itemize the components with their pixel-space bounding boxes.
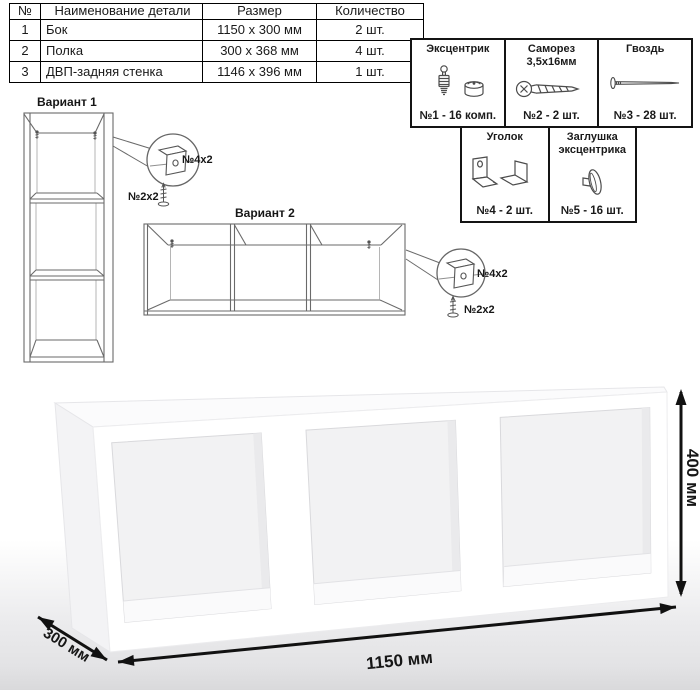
shelf-3d-render: [55, 387, 668, 652]
cell-num: 1: [10, 20, 41, 41]
hardware-item-nail: Гвоздь №3 - 28 шт.: [597, 40, 691, 126]
hardware-item-eccentric: Эксцентрик №1 - 16 комп.: [412, 40, 504, 126]
bracket-qty-label: №4х2: [182, 154, 213, 166]
bracket-qty-label: №4х2: [477, 268, 508, 280]
cam-fitting-icon: [418, 63, 498, 103]
height-dimension-label: 400 мм: [683, 449, 700, 507]
variant2-title: Вариант 2: [235, 206, 295, 220]
corner-bracket-icon: [463, 151, 547, 197]
cell-size: 1150 х 300 мм: [203, 20, 317, 41]
parts-table: № Наименование детали Размер Количество …: [9, 3, 424, 83]
hardware-item-bracket: Уголок №4 - 2 шт.: [462, 128, 548, 221]
hardware-name: Эксцентрик: [426, 43, 489, 56]
cell-num: 2: [10, 41, 41, 62]
nail-icon: [603, 73, 687, 93]
hardware-name: Заглушка: [558, 131, 626, 144]
variant1-callout: №4х2 №2х2: [113, 134, 213, 206]
assembly-instruction-page: Вариант 1: [0, 0, 700, 690]
cell-qty: 1 шт.: [317, 62, 424, 83]
screw-icon: [512, 74, 592, 104]
table-row: 2 Полка 300 х 368 мм 4 шт.: [10, 41, 424, 62]
screw-icon: [448, 297, 458, 318]
back-panel-screws: [171, 240, 371, 249]
hardware-box-row1: Эксцентрик №1 - 16 комп. Са: [410, 38, 693, 128]
hardware-name: Саморез: [527, 43, 577, 56]
screw-icon: [158, 184, 168, 207]
parts-table-header-row: № Наименование детали Размер Количество: [10, 4, 424, 20]
hardware-count: №4 - 2 шт.: [477, 205, 533, 217]
variant1-title: Вариант 1: [37, 95, 97, 109]
hardware-name-line2: 3,5х16мм: [527, 56, 577, 69]
cell-qty: 2 шт.: [317, 20, 424, 41]
variant2-drawing: [144, 224, 405, 315]
screw-qty-label: №2х2: [128, 191, 159, 203]
variant2-callout: №4х2 №2х2: [406, 249, 508, 317]
hardware-item-screw: Саморез 3,5х16мм №2 - 2 шт.: [504, 40, 598, 126]
header-size: Размер: [203, 4, 317, 20]
hardware-name: Уголок: [487, 131, 523, 144]
cell-qty: 4 шт.: [317, 41, 424, 62]
header-num: №: [10, 4, 41, 20]
cell-name: ДВП-задняя стенка: [41, 62, 203, 83]
width-dimension-label: 1150 мм: [365, 648, 433, 673]
table-row: 1 Бок 1150 х 300 мм 2 шт.: [10, 20, 424, 41]
cell-name: Полка: [41, 41, 203, 62]
dimension-height: 400 мм: [676, 389, 700, 597]
cam-cap-icon: [552, 160, 632, 202]
screw-qty-label: №2х2: [464, 304, 495, 316]
hardware-name-line2: эксцентрика: [558, 144, 626, 157]
table-row: 3 ДВП-задняя стенка 1146 х 396 мм 1 шт.: [10, 62, 424, 83]
hardware-name: Гвоздь: [626, 43, 664, 56]
header-name: Наименование детали: [41, 4, 203, 20]
cell-size: 1146 х 396 мм: [203, 62, 317, 83]
cell-num: 3: [10, 62, 41, 83]
hardware-item-cap: Заглушка эксцентрика №5 - 16 шт.: [548, 128, 636, 221]
variant1-drawing: [24, 113, 113, 362]
cell-size: 300 х 368 мм: [203, 41, 317, 62]
header-qty: Количество: [317, 4, 424, 20]
hardware-count: №1 - 16 комп.: [420, 110, 497, 122]
hardware-box-row2: Уголок №4 - 2 шт. Заглушка эксцентрика: [460, 128, 637, 223]
hardware-count: №5 - 16 шт.: [561, 205, 624, 217]
hardware-count: №3 - 28 шт.: [614, 110, 677, 122]
back-panel-screws: [36, 131, 97, 140]
cell-name: Бок: [41, 20, 203, 41]
hardware-count: №2 - 2 шт.: [523, 110, 579, 122]
